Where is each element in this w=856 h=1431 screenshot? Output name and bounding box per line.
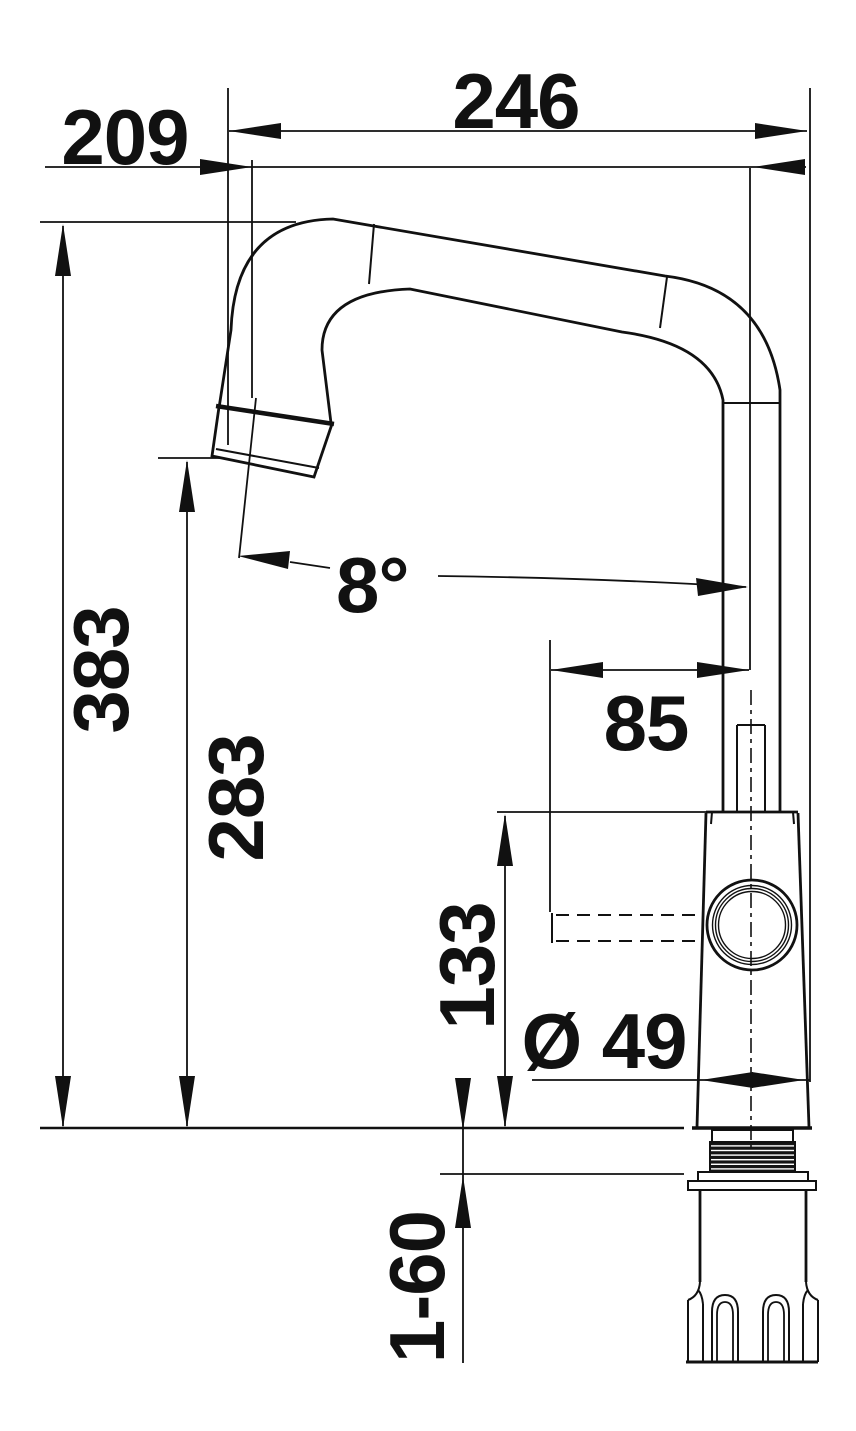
body-collar-tick-left bbox=[711, 812, 712, 824]
arrow-383-bottom bbox=[55, 1076, 71, 1128]
nut-right-inner-top bbox=[803, 1290, 808, 1304]
handle-joint-ring-1 bbox=[713, 886, 792, 965]
handle-joint-outer-circle bbox=[707, 880, 797, 970]
dimension-383: 383 bbox=[40, 222, 296, 1128]
drawing-canvas: 246 209 383 283 8° 8 bbox=[0, 0, 856, 1431]
arrow-85-left bbox=[551, 662, 603, 678]
arrow-209-right bbox=[753, 159, 805, 175]
mounting-shank bbox=[686, 1130, 818, 1362]
washer-upper bbox=[698, 1172, 808, 1181]
pullout-nozzle bbox=[212, 406, 334, 477]
nut-left-inner-top bbox=[698, 1290, 703, 1304]
arrow-1-60-down bbox=[455, 1078, 471, 1130]
arrow-angle-left bbox=[238, 551, 290, 569]
dim-label-lever: 85 bbox=[604, 679, 689, 767]
handle-joint-ring-2 bbox=[716, 889, 789, 962]
arrow-49-right bbox=[752, 1072, 804, 1088]
nut-prong-a-outer bbox=[712, 1295, 738, 1362]
arrow-246-left bbox=[229, 123, 281, 139]
dimension-1-60: 1-60 bbox=[373, 1078, 471, 1363]
nut-prong-b-inner bbox=[768, 1302, 784, 1362]
castellated-nut bbox=[686, 1290, 818, 1362]
arrow-49-left bbox=[701, 1072, 753, 1088]
spout-joint-line-1 bbox=[369, 224, 374, 284]
faucet-dimension-drawing: 246 209 383 283 8° 8 bbox=[0, 0, 856, 1431]
spout-and-riser bbox=[219, 219, 780, 812]
lever-hidden-outline bbox=[552, 913, 704, 943]
nut-prong-a-inner bbox=[717, 1302, 733, 1362]
dim-label-reach-outlet: 209 bbox=[61, 93, 188, 181]
dimension-85: 85 bbox=[550, 640, 749, 912]
dim-label-mounting-range: 1-60 bbox=[373, 1211, 461, 1363]
handle-joint-ring-3 bbox=[719, 892, 786, 959]
dim-label-reach: 246 bbox=[452, 57, 579, 145]
nut-prong-b-outer bbox=[763, 1295, 789, 1362]
dim-label-body-height: 133 bbox=[423, 902, 511, 1029]
dimension-diameter-49: Ø 49 bbox=[521, 997, 810, 1088]
arrow-209-left bbox=[200, 159, 252, 175]
arrow-246-right bbox=[755, 123, 807, 139]
arrow-133-top bbox=[497, 814, 513, 866]
handle-joint bbox=[707, 880, 797, 970]
dim-label-height-outlet: 283 bbox=[192, 734, 280, 861]
spout-joint-line-2 bbox=[660, 277, 667, 328]
arrow-133-bottom bbox=[497, 1076, 513, 1128]
dim-label-height-total: 383 bbox=[57, 606, 145, 733]
washer-lower bbox=[688, 1181, 816, 1190]
faucet-outline bbox=[40, 219, 818, 1362]
dim-label-angle: 8° bbox=[336, 541, 409, 629]
arrow-283-bottom bbox=[179, 1076, 195, 1128]
angle-leader-left bbox=[290, 562, 330, 568]
body-collar-tick-right bbox=[793, 812, 794, 824]
arrow-283-top bbox=[179, 460, 195, 512]
shank-step bbox=[712, 1130, 793, 1142]
shank-thread bbox=[710, 1142, 795, 1172]
dim-label-base-diameter: Ø 49 bbox=[521, 997, 686, 1085]
arrow-383-top bbox=[55, 224, 71, 276]
